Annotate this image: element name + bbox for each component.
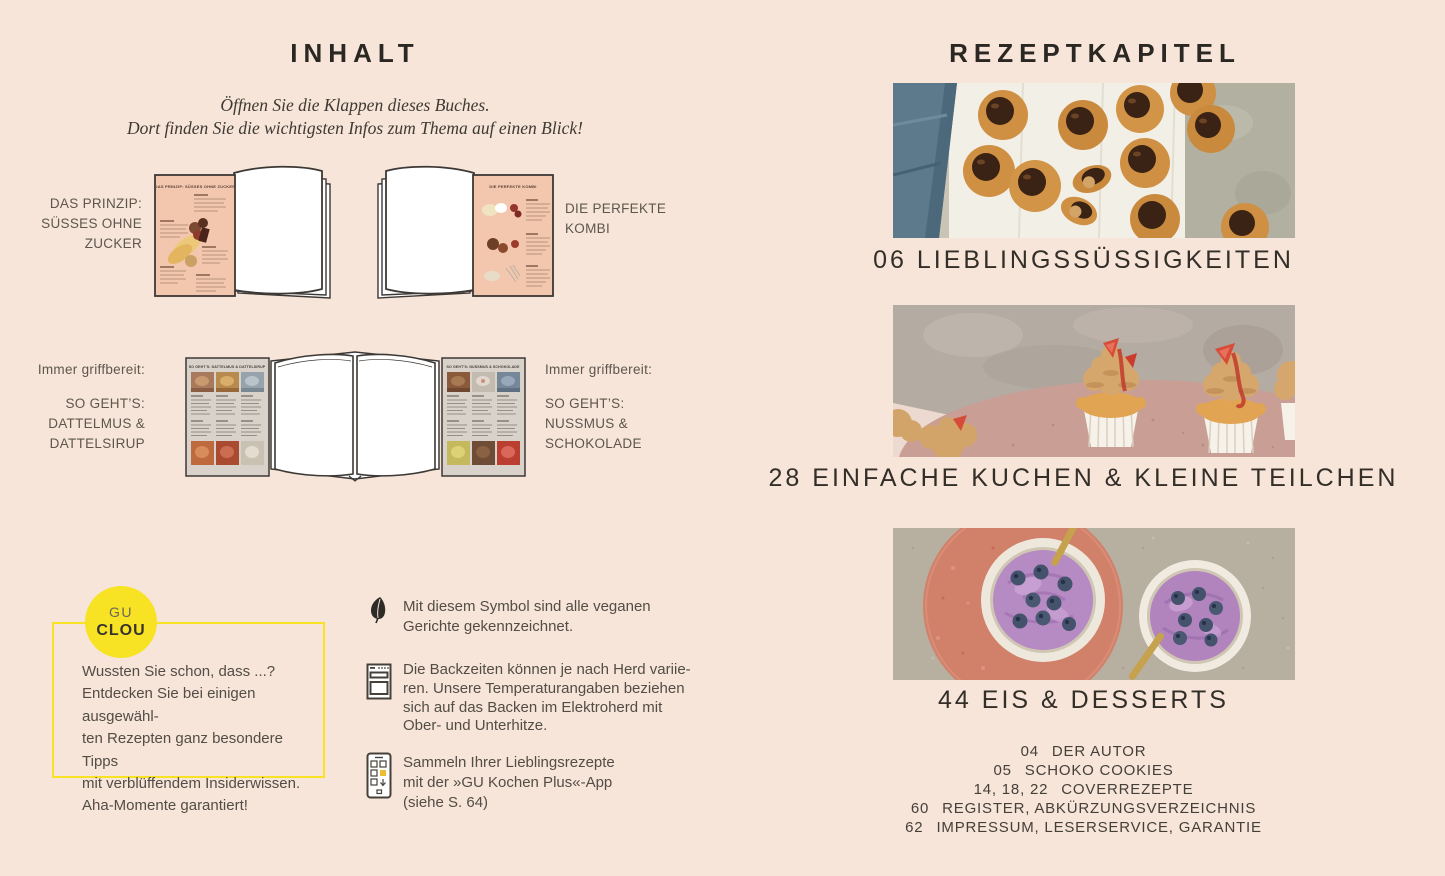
label-line: DIE PERFEKTE (565, 199, 695, 219)
clou-label: CLOU (96, 621, 145, 640)
contents-page-title: INHALT (105, 38, 605, 69)
chapter-heading-suessigkeiten: 06 LIEBLINGSSÜSSIGKEITEN (722, 246, 1445, 275)
flap-title-nussmus: SO GEHT’S: NUSSMUS & SCHOKOLADE (447, 365, 520, 369)
clou-line: ten Rezepten ganz besondere Tipps (82, 728, 322, 773)
label-line: DATTELSIRUP (0, 434, 145, 454)
index-row: 60 REGISTER, ABKÜRZUNGSVERZEICHNIS (722, 799, 1445, 818)
label-line: ZUCKER (0, 234, 142, 254)
label-immer-griffbereit-right: Immer griffbereit: (545, 360, 705, 380)
label-line: DAS PRINZIP: (0, 194, 142, 214)
index-label: SCHOKO COOKIES (1025, 761, 1174, 780)
recipe-chapters-title: REZEPTKAPITEL (845, 38, 1345, 69)
vegan-note-text: Mit diesem Symbol sind alle veganen Geri… (403, 597, 703, 637)
gu-clou-badge: GU CLOU (85, 586, 157, 658)
index-label: DER AUTOR (1052, 742, 1146, 761)
smartphone-icon (366, 752, 392, 799)
note-line: (siehe S. 64) (403, 793, 703, 813)
note-line: Mit diesem Symbol sind alle veganen (403, 597, 703, 617)
note-line: ren. Unsere Temperaturangaben beziehen (403, 680, 713, 699)
label-line: NUSSMUS & (545, 414, 705, 434)
intro-line-1: Öffnen Sie die Klappen dieses Buches. (55, 94, 655, 117)
book-illustration-das-prinzip: DAS PRINZIP: SÜSSES OHNE ZUCKER (150, 162, 342, 312)
label-line: SO GEHT’S: (0, 394, 145, 414)
flap-title-dattelmus: SO GEHT’S: DATTELMUS & DATTELSIRUP (189, 365, 266, 369)
index-row: 04 DER AUTOR (722, 742, 1445, 761)
oven-note-text: Die Backzeiten können je nach Herd varii… (403, 661, 713, 736)
label-line: SO GEHT’S: (545, 394, 705, 414)
index-row: 62 IMPRESSUM, LESERSERVICE, GARANTIE (722, 818, 1445, 837)
oven-icon (366, 663, 392, 701)
leaf-icon (368, 596, 392, 624)
photo-lieblingssuessigkeiten (893, 83, 1295, 238)
index-pages: 14, 18, 22 (974, 780, 1049, 799)
note-line: mit der »GU Kochen Plus«-App (403, 773, 703, 793)
intro-line-2: Dort finden Sie die wichtigsten Infos zu… (55, 117, 655, 140)
index-pages: 60 (911, 799, 929, 818)
index-pages: 62 (905, 818, 923, 837)
label-so-gehts-dattelmus: SO GEHT’S: DATTELMUS & DATTELSIRUP (0, 394, 145, 454)
clou-tip-text: Wussten Sie schon, dass ...? Entdecken S… (82, 661, 322, 818)
note-line: Sammeln Ihrer Lieblingsrezepte (403, 753, 703, 773)
label-line: KOMBI (565, 219, 695, 239)
label-das-prinzip: DAS PRINZIP: SÜSSES OHNE ZUCKER (0, 194, 142, 254)
clou-line: Entdecken Sie bei einigen ausgewähl- (82, 683, 322, 728)
index-pages: 04 (1021, 742, 1039, 761)
index-row: 05 SCHOKO COOKIES (722, 761, 1445, 780)
note-line: Gerichte gekennzeichnet. (403, 617, 703, 637)
index-label: COVERREZEPTE (1061, 780, 1193, 799)
clou-line: Wussten Sie schon, dass ...? (82, 661, 322, 683)
book-illustration-perfekte-kombi: DIE PERFEKTE KOMBI (366, 162, 558, 312)
clou-line: Aha-Momente garantiert! (82, 795, 322, 817)
chapter-heading-eis: 44 EIS & DESSERTS (722, 686, 1445, 715)
page-index-list: 04 DER AUTOR 05 SCHOKO COOKIES 14, 18, 2… (722, 742, 1445, 837)
label-line: SÜSSES OHNE (0, 214, 142, 234)
label-line: SCHOKOLADE (545, 434, 705, 454)
photo-eis-desserts (893, 528, 1295, 680)
app-note-text: Sammeln Ihrer Lieblingsrezepte mit der »… (403, 753, 703, 813)
clou-line: mit verblüffendem Insiderwissen. (82, 773, 322, 795)
chapter-heading-kuchen: 28 EINFACHE KUCHEN & KLEINE TEILCHEN (722, 464, 1445, 493)
note-line: Ober- und Unterhitze. (403, 717, 713, 736)
photo-kuchen-teilchen (893, 305, 1295, 457)
book-illustration-so-gehts: SO GEHT’S: DATTELMUS & DATTELSIRUP SO GE… (183, 331, 528, 483)
intro-text: Öffnen Sie die Klappen dieses Buches. Do… (55, 94, 655, 140)
index-label: IMPRESSUM, LESERSERVICE, GARANTIE (936, 818, 1261, 837)
label-die-perfekte-kombi: DIE PERFEKTE KOMBI (565, 199, 695, 239)
flap-title-perfekte-kombi: DIE PERFEKTE KOMBI (489, 184, 536, 189)
flap-title-das-prinzip: DAS PRINZIP: SÜSSES OHNE ZUCKER (155, 184, 236, 189)
note-line: sich auf das Backen im Elektroherd mit (403, 699, 713, 718)
index-label: REGISTER, ABKÜRZUNGSVERZEICHNIS (942, 799, 1256, 818)
label-immer-griffbereit-left: Immer griffbereit: (0, 360, 145, 380)
label-so-gehts-nussmus: SO GEHT’S: NUSSMUS & SCHOKOLADE (545, 394, 705, 454)
index-pages: 05 (993, 761, 1011, 780)
label-line: DATTELMUS & (0, 414, 145, 434)
gu-label: GU (109, 604, 133, 621)
note-line: Die Backzeiten können je nach Herd varii… (403, 661, 713, 680)
index-row: 14, 18, 22 COVERREZEPTE (722, 780, 1445, 799)
